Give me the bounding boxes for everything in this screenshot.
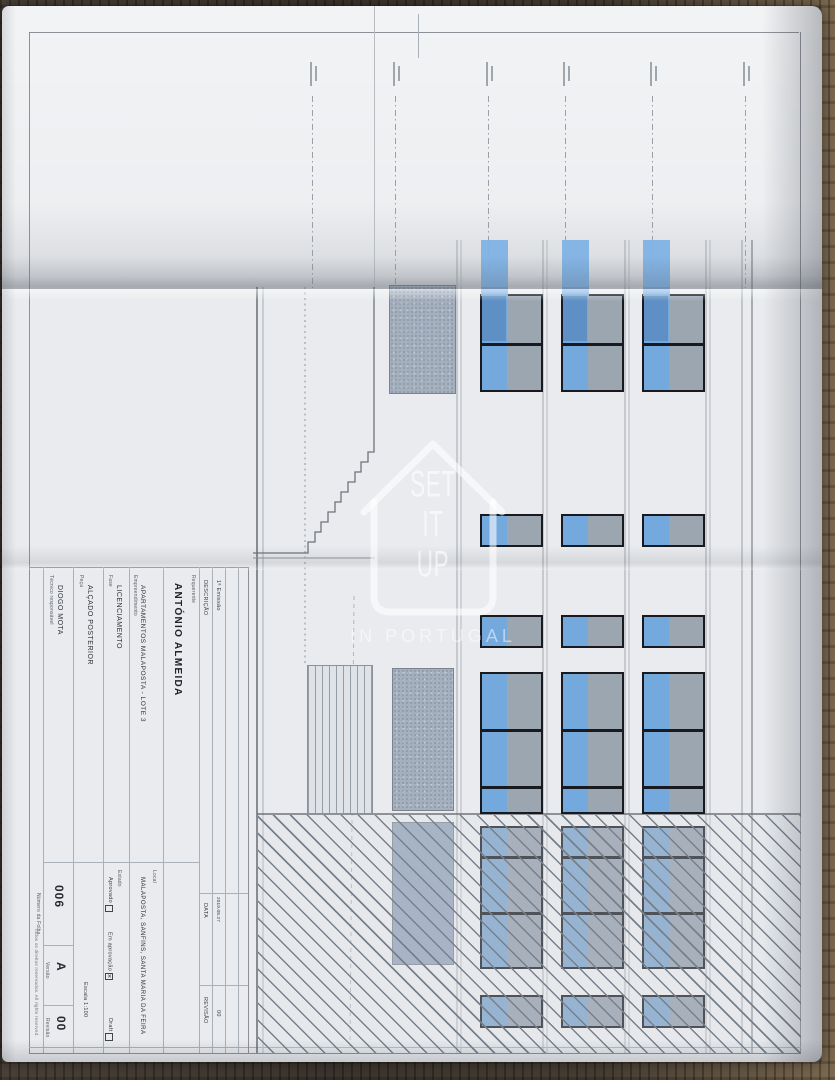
guardrail-strip <box>481 240 508 296</box>
window <box>561 672 624 814</box>
revisao-value: 00 <box>54 1016 68 1031</box>
escala-value: 1:100 <box>82 1002 88 1017</box>
window-mullion <box>644 786 703 789</box>
paper-sheet: Técnico responsável DIOGO MOTA Peça ALÇA… <box>2 6 822 1062</box>
checkbox <box>105 905 113 913</box>
checkbox: ✕ <box>105 973 113 981</box>
folha-value: 006 <box>52 885 66 908</box>
escala-field: Escala 1:100 <box>82 982 88 1017</box>
versao-value: A <box>54 962 68 972</box>
window-mullion <box>644 729 703 732</box>
revision-row-line <box>225 567 226 1053</box>
window <box>642 514 705 547</box>
empreendimento-value: APARTAMENTOS MALAPOSTA - LOTE 3 <box>139 585 146 722</box>
window-glass-blue-pane <box>482 674 507 812</box>
divider <box>163 567 164 1053</box>
estado-option-0: Aprovado <box>105 877 115 912</box>
hatch-overlay-neighbour-zone <box>258 815 801 1053</box>
local-label: Local <box>151 870 157 883</box>
title-block-top-line <box>29 567 248 568</box>
guardrail-strip <box>643 240 670 296</box>
versao-label: Versão <box>44 962 50 979</box>
window-mullion <box>563 343 622 346</box>
window-glass-blue-pane <box>482 617 507 646</box>
window-glass-blue-pane <box>644 674 669 812</box>
revision-descricao-header: DESCRIÇÃO <box>202 580 208 615</box>
fase-value: LICENCIAMENTO <box>115 585 122 649</box>
tecnico-value: DIOGO MOTA <box>56 585 63 635</box>
revision-entry-revisao: 00 <box>215 1010 221 1017</box>
revision-entry-descricao: 1ª Emissão <box>215 580 221 611</box>
empreendimento-label: Empreendimento <box>132 575 138 616</box>
divider <box>199 567 200 1053</box>
divider <box>103 567 104 1053</box>
title-block-mid-line <box>43 862 199 863</box>
window <box>561 514 624 547</box>
window-glass-blue-pane <box>644 516 669 545</box>
window <box>561 615 624 648</box>
copyright-note: Todos os direitos reservados. All rights… <box>34 928 39 1037</box>
window-glass-blue-pane <box>563 674 588 812</box>
photo-of-architectural-drawing: Técnico responsável DIOGO MOTA Peça ALÇA… <box>0 0 835 1080</box>
guardrail-strip-overlap <box>644 296 668 341</box>
revision-col-line <box>199 893 248 894</box>
window-mullion <box>482 786 541 789</box>
requerente-label: Requerente <box>190 575 196 603</box>
title-block: Técnico responsável DIOGO MOTA Peça ALÇA… <box>2 6 262 1062</box>
fase-label: Fase <box>107 575 113 587</box>
window-mullion <box>563 786 622 789</box>
divider <box>73 567 74 1053</box>
estado-label: Estado <box>116 870 122 887</box>
window <box>480 615 543 648</box>
window-mullion <box>644 343 703 346</box>
local-value: MALAPOSTA, SANFINS, SANTA MARIA DA FEIRA <box>139 877 145 1034</box>
peca-label: Peça <box>78 575 84 587</box>
window-mullion <box>482 343 541 346</box>
window-glass-blue-pane <box>644 617 669 646</box>
revisao-label: Revisão <box>44 1018 50 1037</box>
window-glass-blue-pane <box>563 617 588 646</box>
guardrail-strip-overlap <box>563 296 587 341</box>
window-glass-blue-pane <box>563 516 588 545</box>
revision-row-line <box>212 567 213 1053</box>
peca-value: ALÇADO POSTERIOR <box>86 585 93 665</box>
divider <box>43 567 44 1053</box>
window-mullion <box>482 729 541 732</box>
cell-line <box>43 1005 73 1006</box>
tecnico-label: Técnico responsável <box>48 575 54 625</box>
title-block-right-line <box>248 567 249 1053</box>
guardrail-strip <box>562 240 589 296</box>
window <box>480 514 543 547</box>
revision-revisao-header: REVISÃO <box>202 997 208 1024</box>
requerente-value: ANTÓNIO ALMEIDA <box>172 583 183 697</box>
revision-row-line <box>238 567 239 1053</box>
revision-col-line <box>199 985 248 986</box>
revision-data-header: DATA <box>202 903 208 918</box>
window <box>642 615 705 648</box>
guardrail-strip-overlap <box>482 296 506 341</box>
estado-option-2: Draft <box>105 1018 115 1041</box>
window <box>642 672 705 814</box>
revision-entry-data: 2019.08.27 <box>216 897 221 922</box>
cell-line <box>43 945 73 946</box>
checkbox <box>105 1033 113 1041</box>
divider <box>129 567 130 1053</box>
window-glass-blue-pane <box>482 516 507 545</box>
escala-label: Escala <box>82 982 88 1000</box>
window <box>480 672 543 814</box>
estado-option-1: Em aprovação ✕ <box>105 932 115 980</box>
window-mullion <box>563 729 622 732</box>
